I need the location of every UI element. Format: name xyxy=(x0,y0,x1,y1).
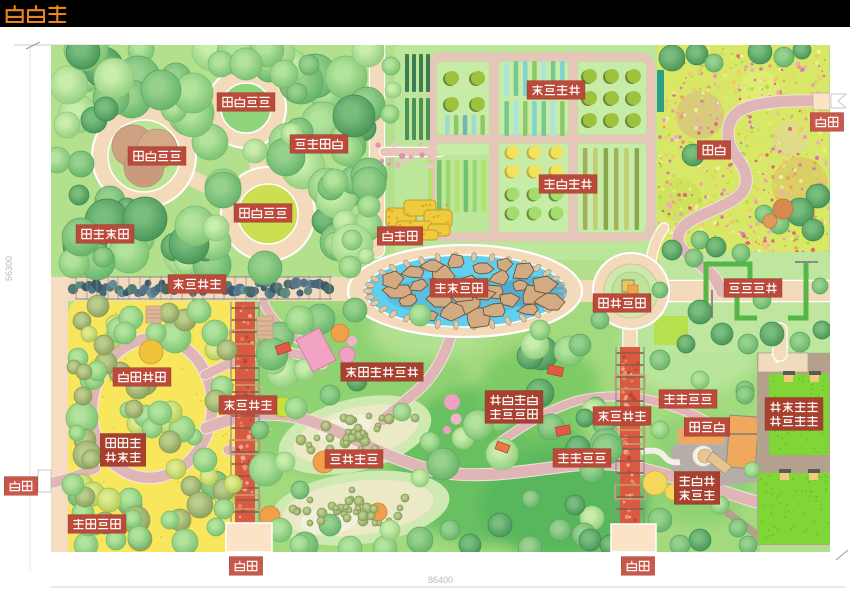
svg-text:56300: 56300 xyxy=(4,256,14,281)
svg-text:86400: 86400 xyxy=(428,575,453,585)
